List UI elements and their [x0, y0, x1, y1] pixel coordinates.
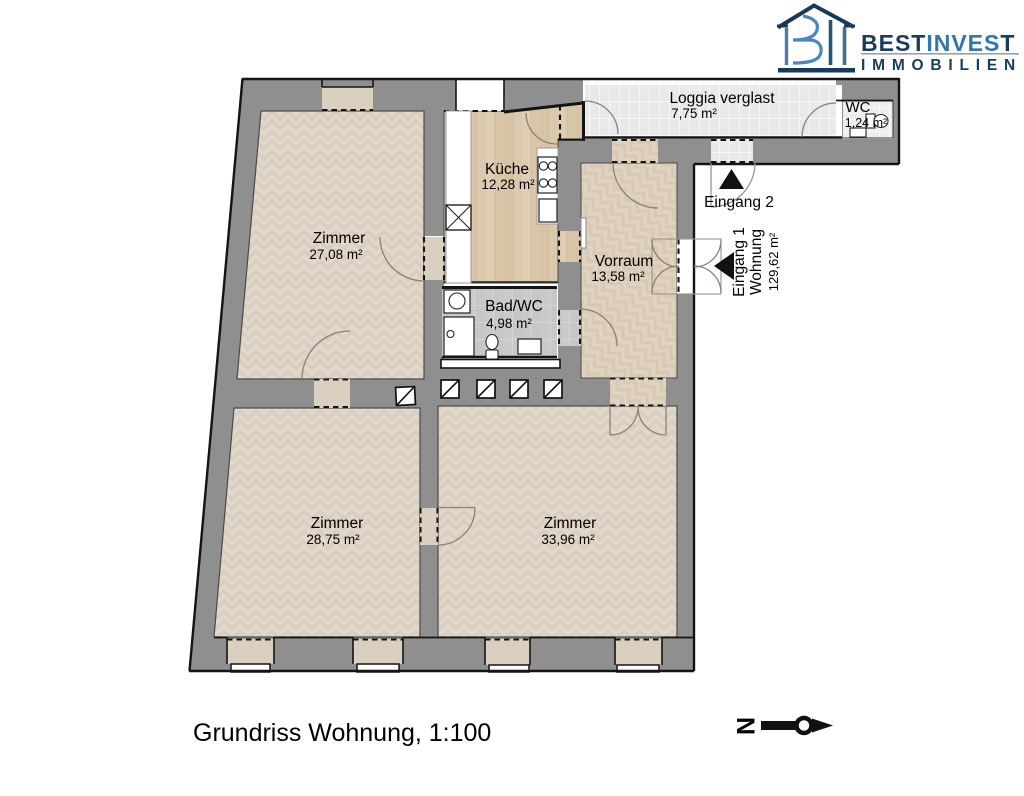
svg-text:Grundriss Wohnung, 1:100: Grundriss Wohnung, 1:100	[193, 719, 491, 747]
svg-text:4,98 m²: 4,98 m²	[486, 316, 532, 331]
svg-text:27,08 m²: 27,08 m²	[309, 247, 363, 262]
svg-text:Eingang 2: Eingang 2	[704, 194, 774, 211]
svg-text:1,24 m²: 1,24 m²	[845, 116, 887, 130]
svg-text:12,28 m²: 12,28 m²	[481, 177, 535, 192]
svg-text:33,96 m²: 33,96 m²	[541, 532, 595, 547]
svg-text:Küche: Küche	[485, 161, 529, 178]
svg-text:13,58 m²: 13,58 m²	[591, 269, 645, 284]
svg-text:7,75 m²: 7,75 m²	[671, 106, 717, 121]
svg-text:Wohnung: Wohnung	[748, 229, 765, 295]
svg-text:28,75 m²: 28,75 m²	[306, 532, 360, 547]
svg-text:Loggia verglast: Loggia verglast	[669, 90, 775, 107]
svg-text:Vorraum: Vorraum	[595, 253, 654, 270]
svg-text:IMMOBILIEN: IMMOBILIEN	[861, 57, 1022, 74]
svg-text:129,62 m²: 129,62 m²	[766, 232, 781, 291]
svg-text:BESTINVEST: BESTINVEST	[861, 30, 1015, 56]
svg-text:Zimmer: Zimmer	[313, 230, 366, 247]
svg-text:WC: WC	[846, 99, 871, 116]
svg-text:Zimmer: Zimmer	[311, 515, 364, 532]
svg-text:Eingang 1: Eingang 1	[731, 227, 748, 297]
svg-text:N: N	[731, 717, 759, 735]
svg-text:Bad/WC: Bad/WC	[485, 298, 543, 315]
svg-text:Zimmer: Zimmer	[544, 515, 597, 532]
